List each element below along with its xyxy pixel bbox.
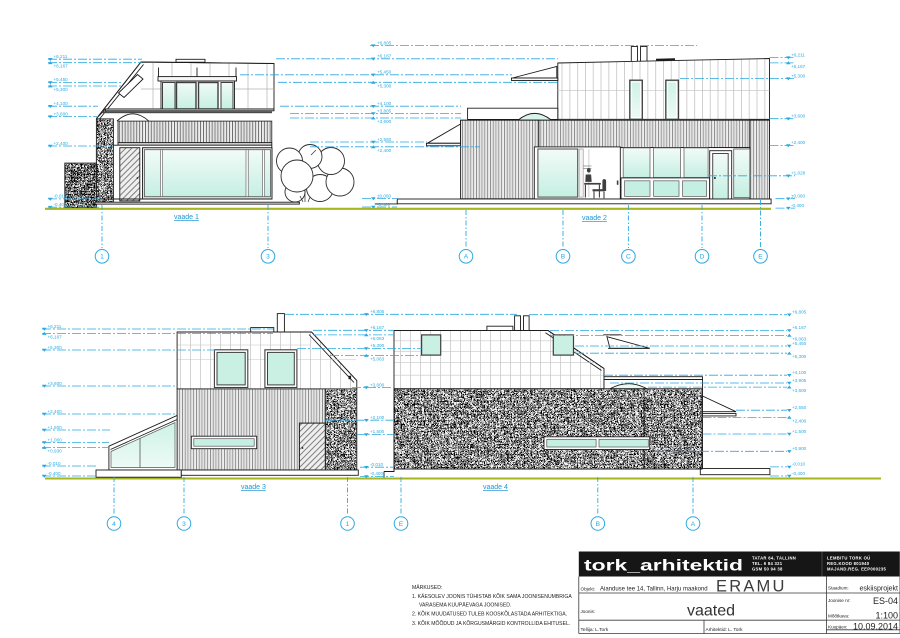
svg-text:eskiisprojekt: eskiisprojekt bbox=[859, 586, 898, 593]
svg-text:+4,100: +4,100 bbox=[54, 101, 69, 106]
svg-text:ES-04: ES-04 bbox=[873, 596, 898, 606]
svg-text:+6,211: +6,211 bbox=[54, 54, 68, 59]
svg-text:+6,805: +6,805 bbox=[792, 310, 807, 315]
svg-text:+6,805: +6,805 bbox=[377, 40, 392, 45]
svg-text:+4,100: +4,100 bbox=[792, 370, 807, 375]
svg-text:+6,805: +6,805 bbox=[370, 309, 385, 314]
svg-text:+6,187: +6,187 bbox=[377, 54, 392, 59]
svg-text:+2,550: +2,550 bbox=[377, 137, 392, 142]
svg-text:1: 1 bbox=[100, 254, 104, 261]
svg-text:+5,300: +5,300 bbox=[792, 354, 807, 359]
svg-text:+5,063: +5,063 bbox=[370, 357, 385, 362]
svg-text:+3,905: +3,905 bbox=[792, 378, 807, 383]
svg-text:+2,550: +2,550 bbox=[792, 405, 807, 410]
svg-text:+3,805: +3,805 bbox=[377, 108, 392, 113]
svg-text:4: 4 bbox=[112, 521, 116, 528]
svg-text:+5,450: +5,450 bbox=[54, 77, 69, 82]
svg-text:Joonise nr:: Joonise nr: bbox=[828, 598, 850, 603]
svg-text:A: A bbox=[464, 254, 469, 261]
svg-text:+3,600: +3,600 bbox=[377, 119, 392, 124]
svg-text:+4,100: +4,100 bbox=[377, 101, 392, 106]
svg-text:+6,211: +6,211 bbox=[791, 52, 805, 57]
svg-text:+3,600: +3,600 bbox=[370, 382, 385, 387]
svg-text:-0,400: -0,400 bbox=[791, 203, 804, 208]
svg-text:±0,000: ±0,000 bbox=[791, 194, 805, 199]
svg-text:+5,300: +5,300 bbox=[370, 343, 385, 348]
svg-text:2. KÕIK MUUDATUSED TULEB KOOSK: 2. KÕIK MUUDATUSED TULEB KOOSKÕLASTADA A… bbox=[412, 611, 567, 618]
svg-text:+1,500: +1,500 bbox=[792, 429, 807, 434]
svg-text:vaade 2: vaade 2 bbox=[582, 215, 607, 222]
svg-text:+6,167: +6,167 bbox=[54, 64, 69, 69]
svg-text:-0,400: -0,400 bbox=[370, 471, 383, 476]
svg-text:+1,000: +1,000 bbox=[48, 437, 63, 442]
svg-text:vaade 4: vaade 4 bbox=[483, 484, 508, 491]
svg-text:vaade 3: vaade 3 bbox=[241, 484, 266, 491]
svg-text:-0,400: -0,400 bbox=[792, 471, 805, 476]
svg-text:+2,400: +2,400 bbox=[792, 418, 807, 423]
svg-text:+6,167: +6,167 bbox=[792, 325, 807, 330]
svg-text:+3,600: +3,600 bbox=[792, 388, 807, 393]
svg-text:Tellija: L.Tork: Tellija: L.Tork bbox=[581, 627, 609, 633]
svg-text:3: 3 bbox=[266, 254, 270, 261]
svg-text:Kuupäev:: Kuupäev: bbox=[828, 625, 847, 630]
svg-text:+5,300: +5,300 bbox=[48, 345, 63, 350]
svg-text:vaade 1: vaade 1 bbox=[174, 214, 199, 221]
svg-text:-0,010: -0,010 bbox=[370, 462, 383, 467]
svg-text:+1,028: +1,028 bbox=[791, 171, 806, 176]
svg-text:Arhitektid: L. Tork: Arhitektid: L. Tork bbox=[706, 627, 744, 633]
svg-text:1:100: 1:100 bbox=[875, 611, 898, 621]
svg-text:-0,010: -0,010 bbox=[48, 461, 61, 466]
svg-text:3. KÕIK MÕÕDUD JA KÕRGUSMÄRGID: 3. KÕIK MÕÕDUD JA KÕRGUSMÄRGID KONTROLLI… bbox=[412, 620, 570, 627]
svg-text:Objekt:: Objekt: bbox=[581, 587, 596, 592]
svg-text:3: 3 bbox=[182, 521, 186, 528]
svg-text:10.09.2014: 10.09.2014 bbox=[853, 622, 898, 632]
svg-text:REG.KOOD 801940: REG.KOOD 801940 bbox=[827, 561, 870, 566]
svg-text:GSM 50 94 38: GSM 50 94 38 bbox=[752, 567, 783, 572]
svg-text:+6,167: +6,167 bbox=[791, 64, 806, 69]
svg-text:+3,600: +3,600 bbox=[54, 111, 69, 116]
svg-text:-0,400: -0,400 bbox=[48, 471, 61, 476]
svg-text:VARASEMA KUUPÄEVAGA JOONISED.: VARASEMA KUUPÄEVAGA JOONISED. bbox=[419, 602, 511, 609]
svg-text:E: E bbox=[399, 521, 404, 528]
svg-text:B: B bbox=[596, 521, 601, 528]
svg-text:tork_arhitektid: tork_arhitektid bbox=[584, 558, 743, 575]
svg-text:C: C bbox=[626, 254, 631, 261]
svg-text:+2,400: +2,400 bbox=[791, 140, 806, 145]
svg-text:+6,211: +6,211 bbox=[48, 324, 62, 329]
svg-text:-0,010: -0,010 bbox=[792, 462, 805, 467]
svg-text:+6,063: +6,063 bbox=[370, 336, 385, 341]
svg-text:+5,300: +5,300 bbox=[791, 73, 806, 78]
svg-text:1: 1 bbox=[346, 521, 350, 528]
svg-text:+2,100: +2,100 bbox=[370, 415, 385, 420]
svg-text:+1,500: +1,500 bbox=[48, 425, 63, 430]
svg-text:B: B bbox=[561, 254, 566, 261]
svg-text:+2,400: +2,400 bbox=[48, 409, 63, 414]
svg-text:D: D bbox=[700, 254, 705, 261]
svg-text:±0,000: ±0,000 bbox=[377, 193, 391, 198]
svg-text:+0,900: +0,900 bbox=[792, 446, 807, 451]
svg-text:TATAR 64, TALLINN: TATAR 64, TALLINN bbox=[752, 556, 796, 561]
svg-text:+5,300: +5,300 bbox=[377, 83, 392, 88]
svg-text:1. KÄESOLEV JOONIS TÜHISTAB KÕ: 1. KÄESOLEV JOONIS TÜHISTAB KÕIK SAMA JO… bbox=[412, 593, 572, 600]
svg-text:+5,450: +5,450 bbox=[377, 70, 392, 75]
svg-text:MAJAND.REG. EEP000235: MAJAND.REG. EEP000235 bbox=[827, 567, 887, 572]
svg-text:A: A bbox=[691, 521, 696, 528]
svg-text:E: E bbox=[758, 254, 763, 261]
svg-text:+3,600: +3,600 bbox=[48, 381, 63, 386]
svg-text:+3,600: +3,600 bbox=[791, 114, 806, 119]
svg-text:-0,010: -0,010 bbox=[54, 194, 67, 199]
svg-text:+5,300: +5,300 bbox=[54, 87, 69, 92]
svg-text:-0,400: -0,400 bbox=[54, 202, 67, 207]
svg-text:-0,400: -0,400 bbox=[377, 202, 390, 207]
svg-text:Staadium:: Staadium: bbox=[828, 586, 849, 591]
svg-text:+6,167: +6,167 bbox=[48, 335, 63, 340]
svg-text:+1,500: +1,500 bbox=[370, 429, 385, 434]
svg-text:+5,450: +5,450 bbox=[792, 341, 807, 346]
svg-text:Joonis:: Joonis: bbox=[581, 609, 596, 614]
svg-text:MÄRKUSED:: MÄRKUSED: bbox=[412, 584, 442, 591]
svg-text:Mõõtkava:: Mõõtkava: bbox=[828, 614, 849, 619]
svg-text:TEL. 6 84 321: TEL. 6 84 321 bbox=[752, 561, 783, 566]
svg-text:vaated: vaated bbox=[687, 603, 735, 620]
svg-text:+6,167: +6,167 bbox=[370, 325, 385, 330]
svg-text:+2,400: +2,400 bbox=[377, 148, 392, 153]
svg-text:+2,400: +2,400 bbox=[54, 141, 69, 146]
svg-text:LEMBITU TORK OÜ: LEMBITU TORK OÜ bbox=[827, 556, 871, 561]
svg-text:ERAMU: ERAMU bbox=[716, 578, 787, 596]
svg-text:Aianduse tee 14, Tallinn, Harj: Aianduse tee 14, Tallinn, Harju maakond bbox=[600, 587, 708, 593]
svg-text:+0,930: +0,930 bbox=[48, 449, 63, 454]
